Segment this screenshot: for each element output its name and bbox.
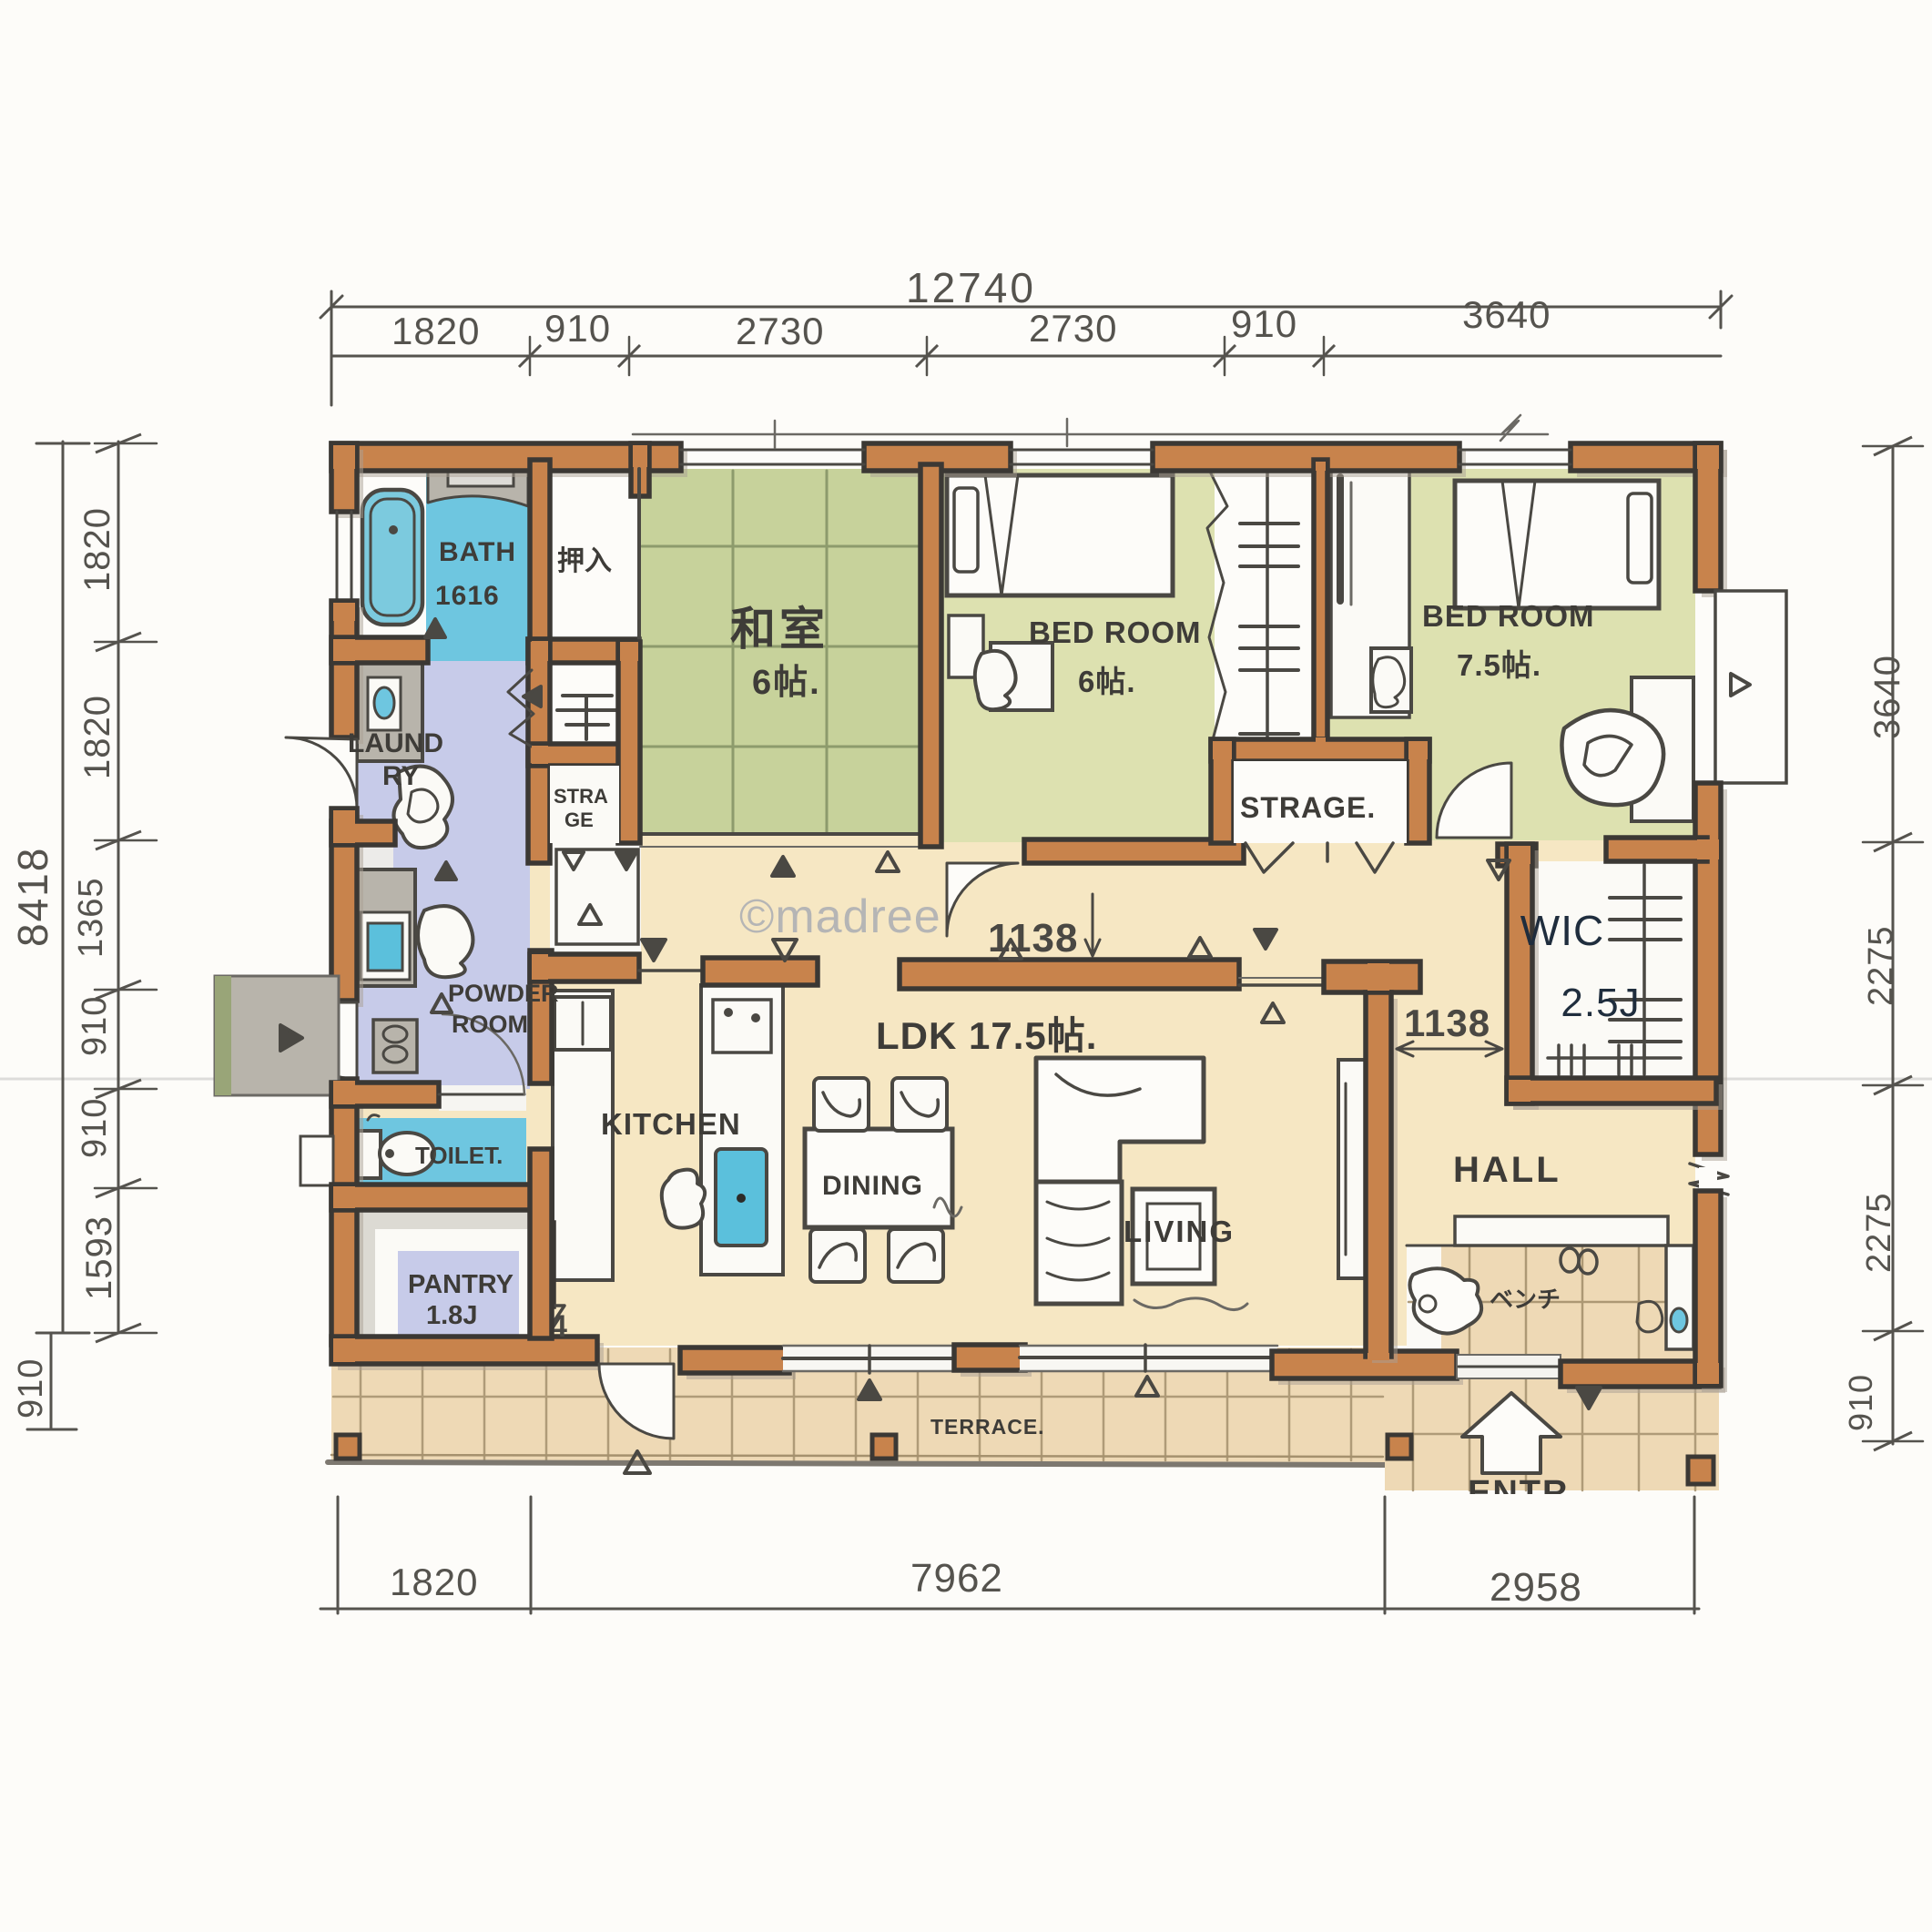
svg-text:LAUND: LAUND — [348, 728, 443, 758]
svg-text:910: 910 — [76, 1098, 114, 1158]
svg-text:3640: 3640 — [1462, 293, 1551, 336]
svg-text:STRAGE.: STRAGE. — [1240, 791, 1376, 824]
svg-text:DINING: DINING — [822, 1171, 923, 1201]
svg-text:2730: 2730 — [1029, 307, 1117, 350]
svg-text:STRA: STRA — [554, 785, 608, 808]
svg-text:910: 910 — [544, 307, 611, 350]
svg-text:1820: 1820 — [77, 507, 117, 592]
svg-text:910: 910 — [1231, 302, 1297, 345]
svg-text:2275: 2275 — [1860, 1192, 1898, 1273]
svg-text:PANTRY: PANTRY — [408, 1270, 514, 1299]
svg-text:12740: 12740 — [906, 264, 1036, 311]
svg-text:KITCHEN: KITCHEN — [601, 1107, 741, 1141]
svg-text:7.5帖.: 7.5帖. — [1457, 648, 1541, 682]
svg-text:7962: 7962 — [910, 1556, 1003, 1601]
svg-text:WIC: WIC — [1520, 907, 1604, 954]
svg-text:HALL: HALL — [1453, 1150, 1561, 1190]
svg-text:GE: GE — [564, 808, 594, 831]
svg-text:1593: 1593 — [79, 1215, 119, 1300]
svg-text:押入: 押入 — [557, 546, 612, 576]
svg-text:LDK 17.5帖.: LDK 17.5帖. — [876, 1014, 1097, 1057]
svg-text:BED ROOM: BED ROOM — [1422, 599, 1595, 633]
svg-text:910: 910 — [1842, 1374, 1879, 1431]
svg-text:2275: 2275 — [1862, 925, 1900, 1006]
svg-text:TERRACE.: TERRACE. — [930, 1415, 1045, 1439]
svg-text:BED ROOM: BED ROOM — [1029, 615, 1202, 649]
svg-text:910: 910 — [76, 996, 114, 1056]
svg-text:1.8J: 1.8J — [426, 1301, 477, 1330]
svg-text:6帖.: 6帖. — [1078, 665, 1136, 698]
svg-text:1365: 1365 — [72, 877, 110, 958]
svg-text:3640: 3640 — [1867, 655, 1907, 739]
svg-text:1616: 1616 — [435, 581, 500, 611]
svg-text:1820: 1820 — [390, 1561, 478, 1603]
svg-text:1138: 1138 — [988, 916, 1078, 961]
svg-text:6帖.: 6帖. — [752, 664, 821, 702]
svg-text:1820: 1820 — [391, 310, 480, 352]
svg-text:1138: 1138 — [1404, 1002, 1490, 1044]
svg-text:2730: 2730 — [736, 310, 824, 352]
svg-text:910: 910 — [12, 1358, 50, 1418]
svg-text:ROOM: ROOM — [452, 1011, 528, 1038]
svg-text:和室: 和室 — [730, 604, 829, 655]
svg-text:ベンチ: ベンチ — [1490, 1286, 1561, 1313]
svg-text:8418: 8418 — [9, 847, 56, 947]
svg-text:BATH: BATH — [439, 537, 516, 567]
svg-text:TOILET.: TOILET. — [415, 1142, 503, 1169]
svg-text:LIVING: LIVING — [1124, 1215, 1235, 1248]
svg-text:2958: 2958 — [1490, 1565, 1582, 1610]
svg-text:1820: 1820 — [77, 695, 117, 779]
svg-text:2.5J: 2.5J — [1561, 981, 1640, 1025]
svg-text:©madree: ©madree — [739, 890, 941, 943]
svg-text:POWDER: POWDER — [448, 980, 559, 1007]
svg-text:RY: RY — [382, 761, 420, 791]
